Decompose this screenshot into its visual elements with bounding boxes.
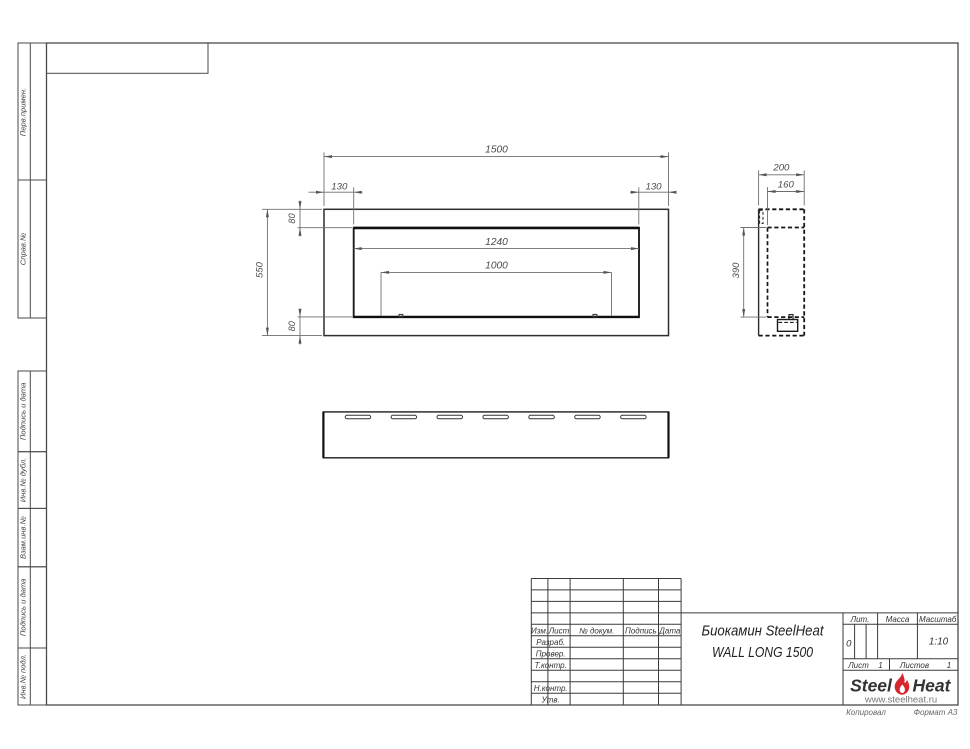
- svg-text:550: 550: [254, 261, 265, 278]
- svg-text:80: 80: [287, 213, 297, 224]
- svg-text:Утв.: Утв.: [541, 696, 560, 705]
- svg-text:Копировал: Копировал: [846, 708, 886, 717]
- svg-text:Листов: Листов: [899, 661, 929, 670]
- svg-text:Справ.№: Справ.№: [19, 233, 28, 265]
- svg-text:Взам.инв.№: Взам.инв.№: [19, 516, 28, 559]
- svg-text:Подпись: Подпись: [625, 627, 657, 636]
- svg-text:1500: 1500: [485, 144, 508, 155]
- svg-text:130: 130: [645, 182, 662, 193]
- svg-text:Инв.№ дубл.: Инв.№ дубл.: [19, 458, 28, 503]
- svg-text:130: 130: [331, 182, 348, 193]
- svg-text:WALL LONG 1500: WALL LONG 1500: [712, 644, 814, 661]
- svg-text:www.steelheat.ru: www.steelheat.ru: [864, 695, 937, 706]
- svg-text:160: 160: [778, 179, 795, 190]
- svg-text:Провер.: Провер.: [536, 650, 566, 659]
- svg-text:Лист: Лист: [548, 627, 570, 636]
- svg-text:Heat: Heat: [913, 676, 952, 696]
- svg-text:Лист: Лист: [847, 661, 869, 670]
- svg-text:1240: 1240: [485, 237, 508, 248]
- svg-text:80: 80: [287, 320, 297, 331]
- svg-text:1: 1: [878, 661, 882, 670]
- svg-text:1:10: 1:10: [929, 637, 949, 648]
- svg-text:Т.контр.: Т.контр.: [535, 661, 567, 670]
- svg-text:Н.контр.: Н.контр.: [534, 684, 568, 693]
- svg-text:1000: 1000: [485, 261, 508, 272]
- svg-text:0: 0: [846, 639, 852, 650]
- svg-text:Дата: Дата: [658, 627, 681, 636]
- svg-text:1: 1: [947, 661, 951, 670]
- svg-text:200: 200: [772, 163, 790, 174]
- svg-text:390: 390: [731, 262, 742, 279]
- svg-text:Лит.: Лит.: [850, 615, 870, 624]
- svg-text:Steel: Steel: [850, 676, 893, 696]
- svg-text:№ докум.: № докум.: [579, 627, 614, 636]
- svg-text:Разраб.: Разраб.: [536, 638, 565, 647]
- svg-text:Биокамин SteelHeat: Биокамин SteelHeat: [702, 623, 825, 640]
- svg-text:Инв.№ подл.: Инв.№ подл.: [19, 654, 28, 699]
- svg-text:Масштаб: Масштаб: [919, 615, 957, 624]
- svg-text:Масса: Масса: [886, 615, 910, 624]
- svg-text:Перв.примен.: Перв.примен.: [19, 88, 28, 136]
- svg-text:Подпись и дата: Подпись и дата: [19, 579, 28, 636]
- svg-text:Подпись и дата: Подпись и дата: [19, 383, 28, 440]
- svg-text:Формат А3: Формат А3: [914, 708, 958, 717]
- svg-text:Изм.: Изм.: [531, 627, 548, 636]
